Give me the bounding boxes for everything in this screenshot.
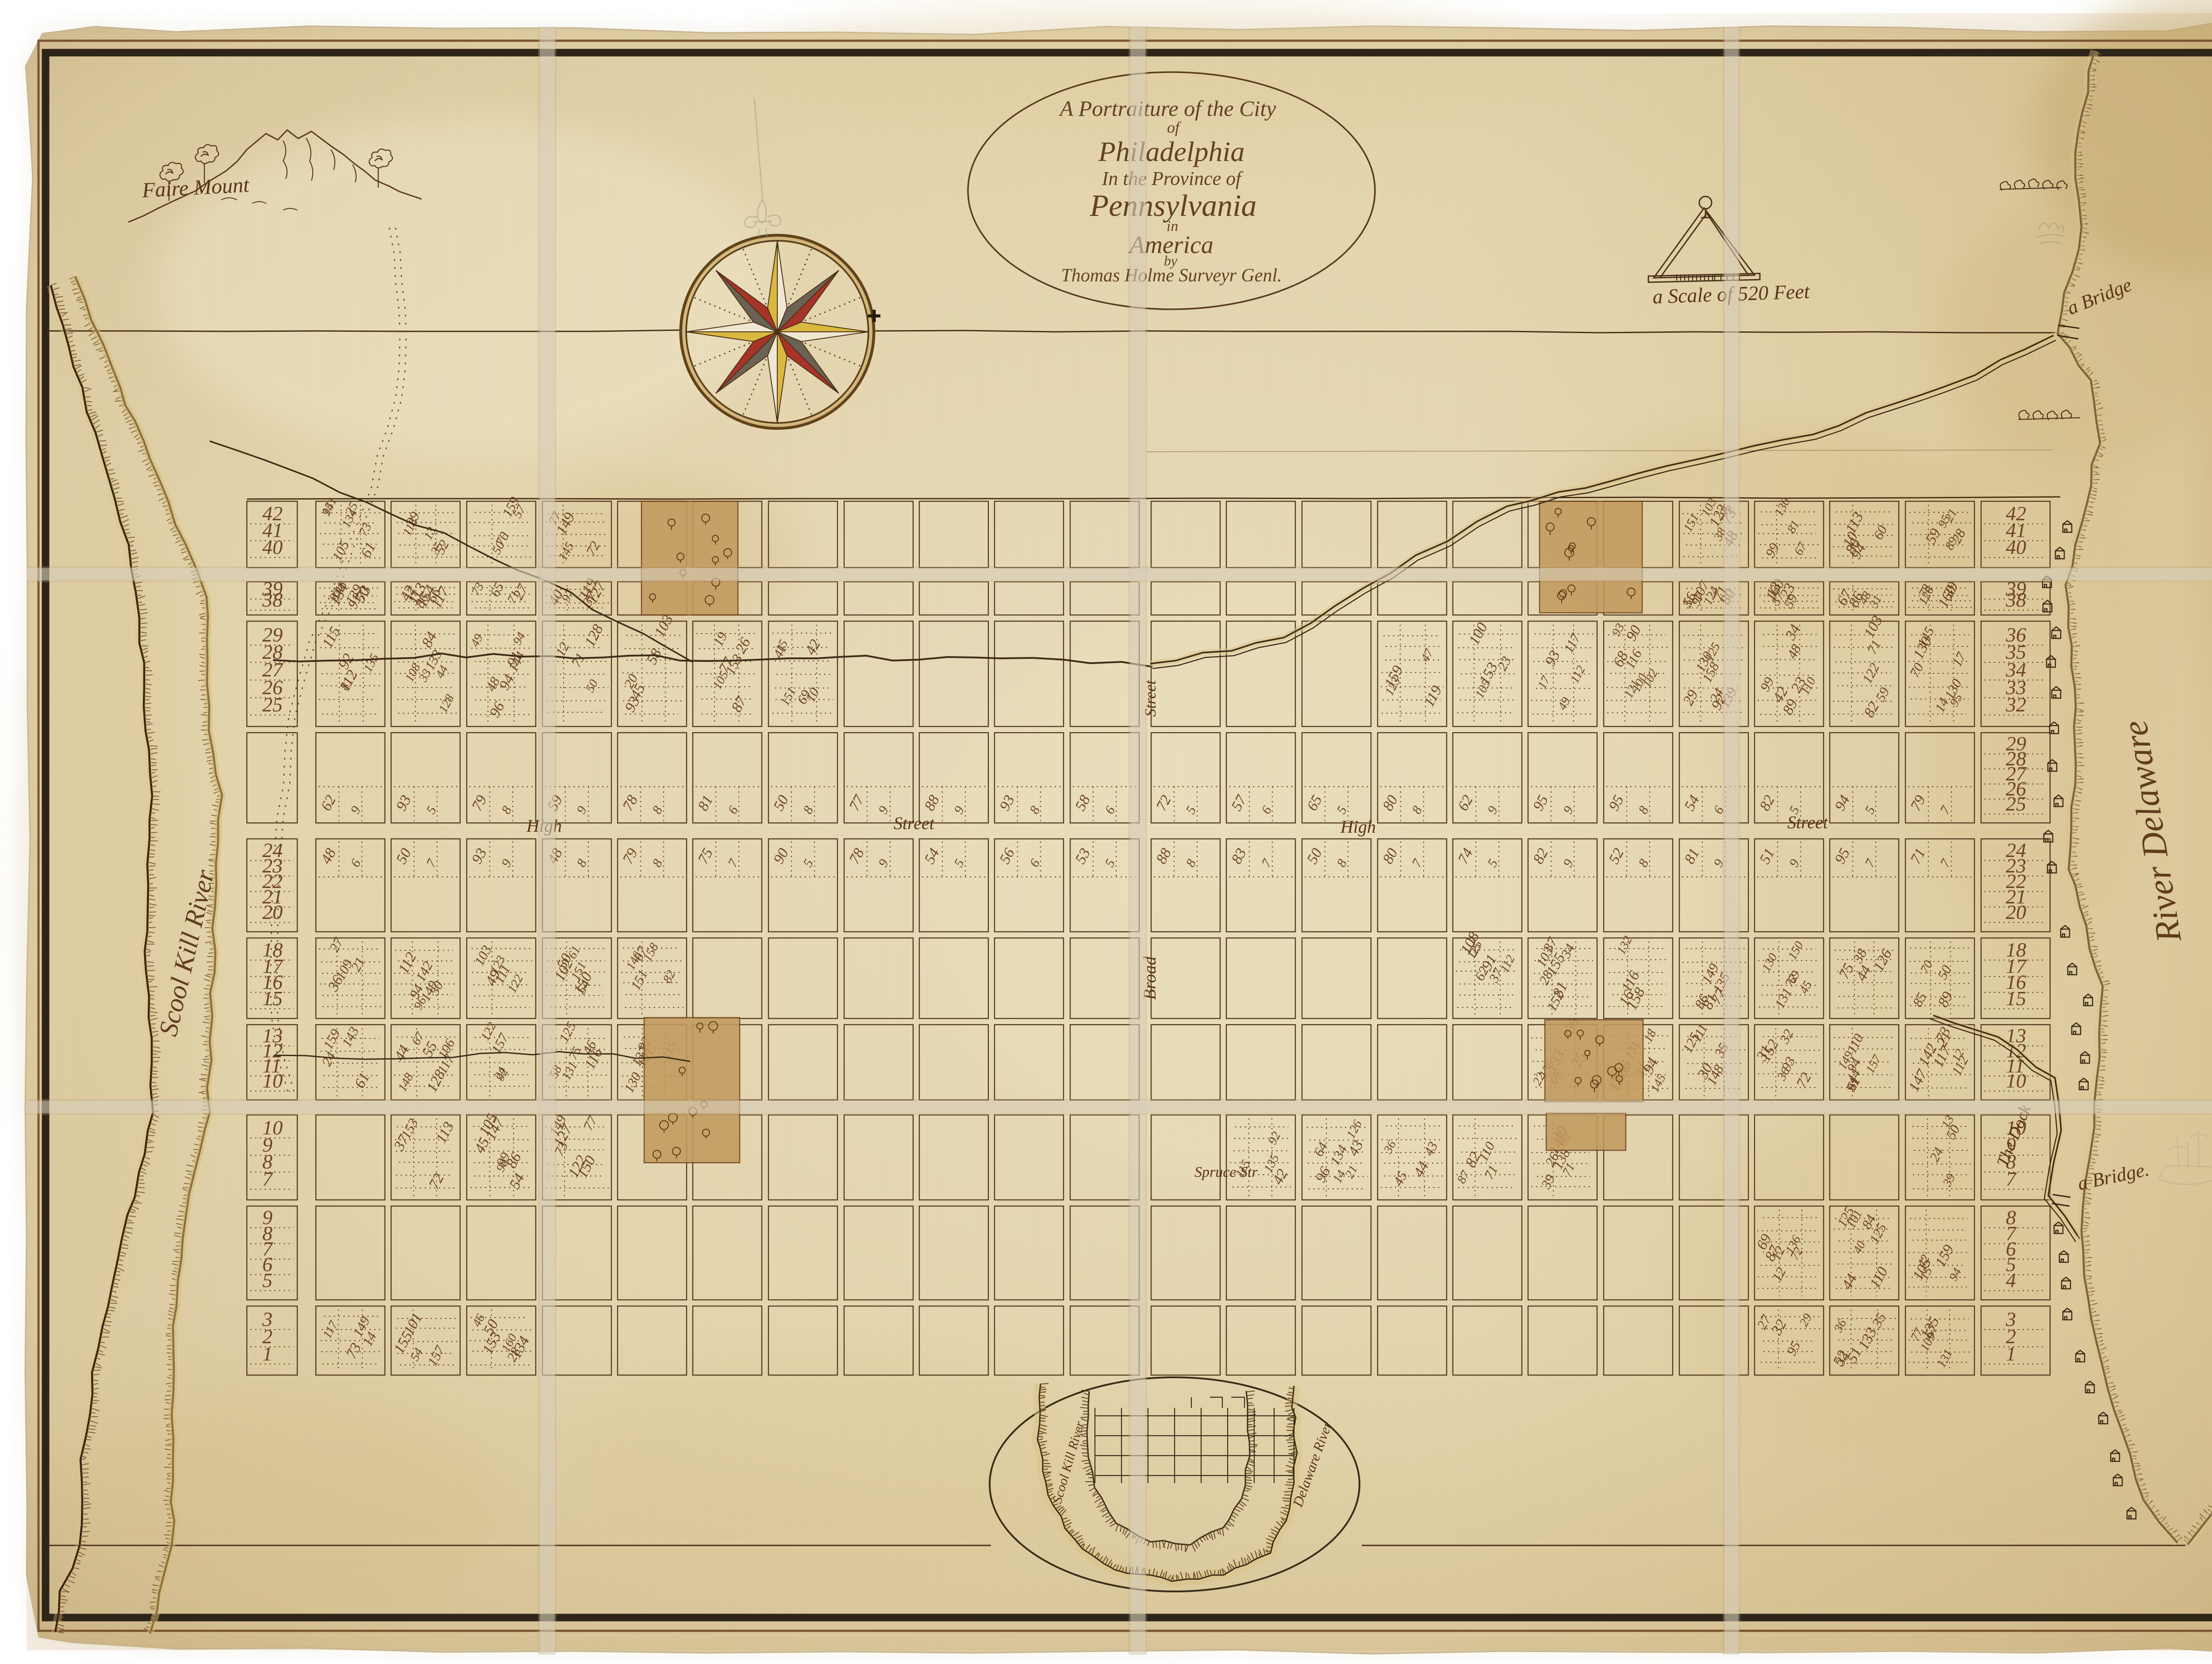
svg-text:32: 32 bbox=[2005, 693, 2026, 716]
svg-text:25: 25 bbox=[262, 693, 283, 716]
svg-text:1: 1 bbox=[262, 1342, 273, 1365]
svg-text:20: 20 bbox=[2006, 901, 2026, 923]
svg-text:15: 15 bbox=[2006, 987, 2026, 1010]
svg-text:38: 38 bbox=[2005, 588, 2026, 611]
svg-text:1: 1 bbox=[2006, 1342, 2016, 1365]
svg-text:A Portraiture of the City: A Portraiture of the City bbox=[1059, 96, 1277, 121]
svg-text:38: 38 bbox=[262, 588, 283, 611]
svg-text:High: High bbox=[1340, 817, 1376, 837]
svg-text:15: 15 bbox=[262, 987, 283, 1010]
svg-text:4: 4 bbox=[2006, 1269, 2016, 1291]
svg-text:Thomas Holme Surveyr Genl.: Thomas Holme Surveyr Genl. bbox=[1061, 265, 1282, 286]
svg-text:25: 25 bbox=[2006, 792, 2026, 815]
svg-text:20: 20 bbox=[262, 901, 283, 923]
svg-text:40: 40 bbox=[262, 536, 283, 558]
svg-text:7: 7 bbox=[262, 1168, 273, 1190]
svg-text:5: 5 bbox=[262, 1269, 273, 1291]
svg-text:10: 10 bbox=[262, 1069, 283, 1092]
svg-text:In the Province of: In the Province of bbox=[1102, 168, 1244, 189]
svg-text:Street: Street bbox=[894, 813, 935, 833]
svg-text:10: 10 bbox=[2006, 1069, 2026, 1092]
svg-text:Philadelphia: Philadelphia bbox=[1098, 136, 1245, 167]
svg-text:40: 40 bbox=[2006, 536, 2026, 558]
svg-text:7: 7 bbox=[2006, 1168, 2017, 1190]
svg-text:Spruce Str: Spruce Str bbox=[1194, 1164, 1258, 1180]
svg-text:Street: Street bbox=[1787, 812, 1828, 832]
